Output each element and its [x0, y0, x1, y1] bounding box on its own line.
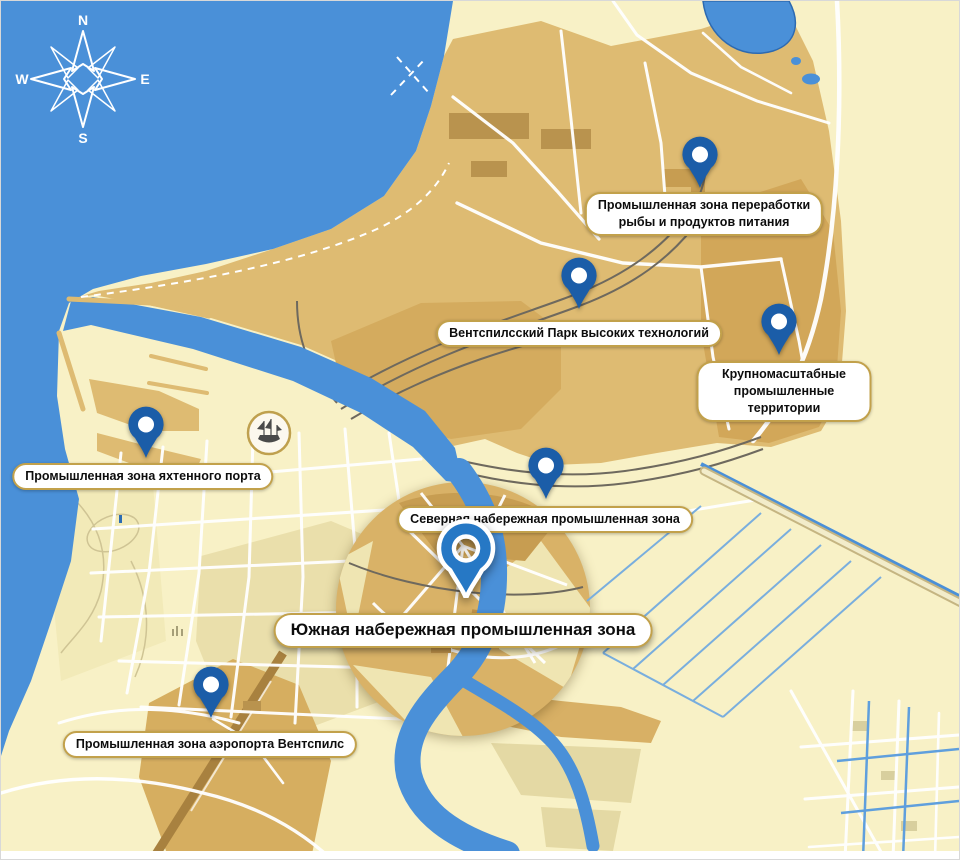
map-pin-southern-quay[interactable] [429, 502, 503, 598]
map-pin-fish-processing[interactable] [678, 130, 722, 188]
compass-south-label: S [78, 130, 87, 146]
pin-icon [678, 130, 722, 188]
zone-label-high-tech-park[interactable]: Вентспилсский Парк высоких технологий [436, 320, 722, 347]
zone-label-large-scale[interactable]: Крупномасштабные промышленные территории [697, 361, 872, 422]
ventspils-industrial-map: N S W E [0, 0, 960, 860]
compass-north-label: N [78, 12, 88, 28]
bottom-margin [1, 851, 960, 860]
ship-emblem-icon [248, 412, 290, 454]
pin-icon [189, 660, 233, 718]
zone-label-southern-quay[interactable]: Южная набережная промышленная зона [274, 613, 653, 648]
map-pin-large-scale[interactable] [757, 297, 801, 355]
zone-label-yacht-port[interactable]: Промышленная зона яхтенного порта [12, 463, 273, 490]
flag-marker [119, 515, 122, 523]
compass-west-label: W [15, 71, 29, 87]
pin-icon [557, 251, 601, 309]
compass-east-label: E [140, 71, 149, 87]
zone-label-airport[interactable]: Промышленная зона аэропорта Вентспилс [63, 731, 357, 758]
map-pin-yacht-port[interactable] [124, 400, 168, 458]
map-pin-northern-quay[interactable] [524, 441, 568, 499]
zone-label-fish-processing[interactable]: Промышленная зона переработки рыбы и про… [585, 192, 823, 236]
pin-icon-highlighted [429, 502, 503, 598]
map-pin-high-tech-park[interactable] [557, 251, 601, 309]
map-pin-airport[interactable] [189, 660, 233, 718]
pin-icon [524, 441, 568, 499]
pin-icon [757, 297, 801, 355]
pin-icon [124, 400, 168, 458]
